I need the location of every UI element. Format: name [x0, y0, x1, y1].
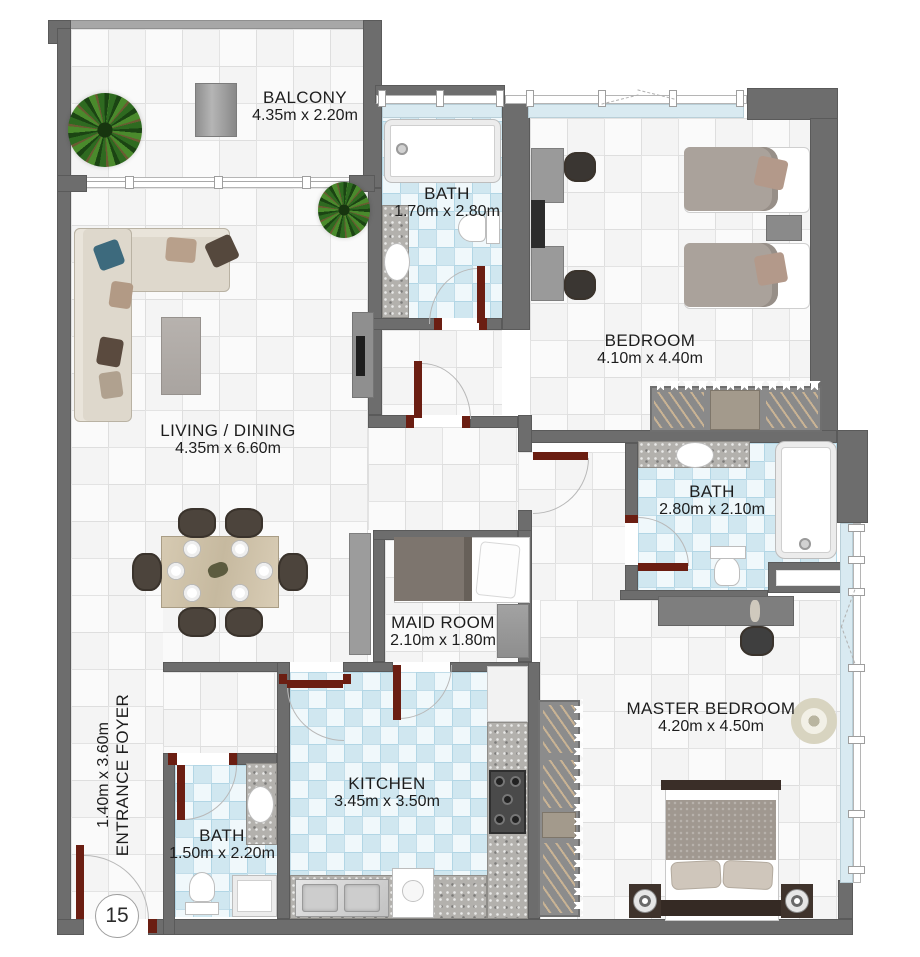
- bottom-wall-left: [57, 919, 84, 935]
- twin-bed-2-cushion: [754, 252, 789, 287]
- master-bedroom-label: MASTER BEDROOM 4.20m x 4.50m: [581, 699, 841, 736]
- hall-lower-floor: [368, 427, 518, 530]
- balcony-label: BALCONY 4.35m x 2.20m: [230, 88, 380, 125]
- master-desk-chair: [740, 626, 774, 656]
- closet-shelf: [542, 812, 576, 838]
- bottom-wall-main: [148, 919, 853, 935]
- master-bed-footboard: [661, 780, 781, 790]
- entrance-door-leaf: [76, 845, 84, 919]
- wardrobe-shelf: [710, 390, 760, 430]
- bath-ensuite-label: BATH 2.80m x 2.10m: [622, 482, 802, 519]
- master-window-frame: [853, 523, 861, 883]
- door-jamb: [406, 415, 414, 428]
- toilet-tank: [710, 546, 746, 559]
- bath-top-south-wall-b: [485, 318, 502, 330]
- window-corner-post: [838, 880, 853, 919]
- plate: [184, 585, 200, 601]
- dining-chair: [278, 553, 308, 591]
- door-jamb: [343, 674, 351, 684]
- master-niche-inner: [776, 570, 842, 586]
- kitchen-door-leaf: [287, 680, 343, 688]
- slider-handle: [214, 176, 223, 189]
- door-jamb: [462, 416, 470, 428]
- desk-chair: [564, 270, 596, 300]
- dining-chair: [178, 508, 216, 538]
- wardrobe-hangers: [654, 392, 704, 428]
- sink-basin: [344, 884, 380, 912]
- toilet: [189, 872, 215, 902]
- stove-burner: [494, 776, 505, 787]
- window-mullion: [848, 866, 865, 874]
- bath-ensuite-door-leaf: [638, 563, 688, 571]
- sofa-pillow-tan: [165, 237, 197, 264]
- floor-plan: BALCONY 4.35m x 2.20m BATH 1.70m x 2.80m…: [0, 0, 920, 957]
- door-jamb: [229, 753, 237, 765]
- dishwasher-dial: [402, 880, 424, 902]
- sink: [247, 786, 274, 823]
- plate: [256, 563, 272, 579]
- window-mullion: [436, 90, 444, 107]
- window-mullion: [848, 524, 865, 532]
- sink: [384, 243, 410, 281]
- window-mullion: [736, 90, 744, 107]
- stove-burner: [494, 814, 505, 825]
- stove-burner: [510, 776, 521, 787]
- door-jamb: [168, 753, 177, 765]
- window-mullion: [526, 90, 534, 107]
- maid-door-leaf: [393, 665, 401, 720]
- unit-number-badge: 15: [95, 894, 139, 938]
- slider-handle: [302, 176, 311, 189]
- unit-number: 15: [105, 904, 128, 928]
- palm-plant: [68, 93, 142, 167]
- maid-bed-blanket: [394, 537, 472, 601]
- fridge: [487, 666, 528, 722]
- bathtub-drain: [396, 143, 408, 155]
- master-window: [840, 523, 853, 883]
- kitchen-north-wall-b: [343, 662, 393, 672]
- desk: [531, 148, 564, 203]
- plate: [168, 563, 184, 579]
- desk-monitor: [531, 200, 545, 248]
- bedroom-window: [528, 104, 744, 118]
- sink: [676, 442, 714, 468]
- window-mullion: [848, 736, 865, 744]
- dining-chair: [132, 553, 162, 591]
- hall-divider-right: [470, 416, 518, 428]
- master-bed-pillow: [671, 861, 720, 889]
- sink-basin: [302, 884, 338, 912]
- bath-guest-door-leaf: [177, 765, 185, 820]
- master-desk-item: [750, 600, 760, 622]
- bedroom-label: BEDROOM 4.10m x 4.40m: [550, 331, 750, 368]
- entrance-foyer-label: 1.40m x 3.60m ENTRANCE FOYER: [95, 690, 137, 860]
- dining-chair: [225, 508, 263, 538]
- twin-bed-1-cushion: [753, 155, 789, 191]
- small-plant: [318, 182, 370, 238]
- closet-hangers: [543, 843, 575, 913]
- sofa-pillow-brown: [96, 336, 124, 368]
- bath-top-door-leaf: [477, 266, 485, 323]
- bath-top-label: BATH 1.70m x 2.80m: [377, 184, 517, 221]
- kitchen-north-wall-a: [163, 662, 287, 672]
- hall-door-leaf: [414, 361, 422, 418]
- window-mullion: [848, 588, 865, 596]
- nightstand: [766, 215, 802, 241]
- plate: [232, 541, 248, 557]
- coffee-table: [162, 318, 200, 394]
- master-bed-blanket: [666, 800, 776, 860]
- window-mullion: [848, 664, 865, 672]
- shower-tray: [232, 875, 277, 917]
- maid-room-label: MAID ROOM 2.10m x 1.80m: [353, 613, 533, 650]
- hall-stub-upper: [518, 415, 532, 452]
- door-jamb: [148, 919, 157, 933]
- master-bed-headboard: [659, 900, 783, 916]
- bedroom-topright-block: [747, 88, 838, 120]
- door-jamb: [479, 318, 487, 330]
- wardrobe-open-doors: [650, 381, 822, 390]
- slider-jamb-left: [57, 175, 87, 192]
- desk-chair: [564, 152, 596, 182]
- window-mullion: [848, 556, 865, 564]
- toilet: [714, 556, 740, 586]
- closet-hangers: [543, 705, 575, 753]
- table-lamp: [786, 890, 808, 912]
- bath-guest-label: BATH 1.50m x 2.20m: [142, 826, 302, 863]
- plate: [232, 585, 248, 601]
- kitchen-label: KITCHEN 3.45m x 3.50m: [287, 774, 487, 811]
- window-mullion: [496, 90, 504, 107]
- table-lamp: [634, 890, 656, 912]
- plate: [184, 541, 200, 557]
- left-outer-wall: [57, 28, 71, 935]
- balcony-parapet: [48, 20, 366, 29]
- sofa-pillow-tan: [98, 371, 123, 400]
- stove-burner: [510, 814, 521, 825]
- sofa-pillow-tan: [108, 281, 133, 310]
- master-suite-door-leaf: [533, 452, 588, 460]
- toilet-tank: [185, 902, 219, 915]
- master-desk: [658, 596, 794, 626]
- wardrobe-hangers: [766, 392, 818, 428]
- closet-hangers: [543, 760, 575, 808]
- master-bed-pillow: [723, 861, 772, 889]
- door-jamb: [279, 674, 287, 684]
- maid-bed-pillow: [475, 541, 520, 599]
- dining-chair: [225, 607, 263, 637]
- slider-handle: [125, 176, 134, 189]
- desk: [531, 246, 564, 301]
- foyer-corridor-floor: [163, 672, 277, 753]
- bath-ensuite-jog-wall: [837, 430, 868, 523]
- door-jamb: [434, 318, 442, 330]
- tv-screen: [356, 336, 365, 376]
- dining-chair: [178, 607, 216, 637]
- window-mullion: [848, 810, 865, 818]
- stove-burner: [502, 794, 513, 805]
- bathtub-drain: [799, 538, 811, 550]
- living-dining-label: LIVING / DINING 4.35m x 6.60m: [118, 421, 338, 458]
